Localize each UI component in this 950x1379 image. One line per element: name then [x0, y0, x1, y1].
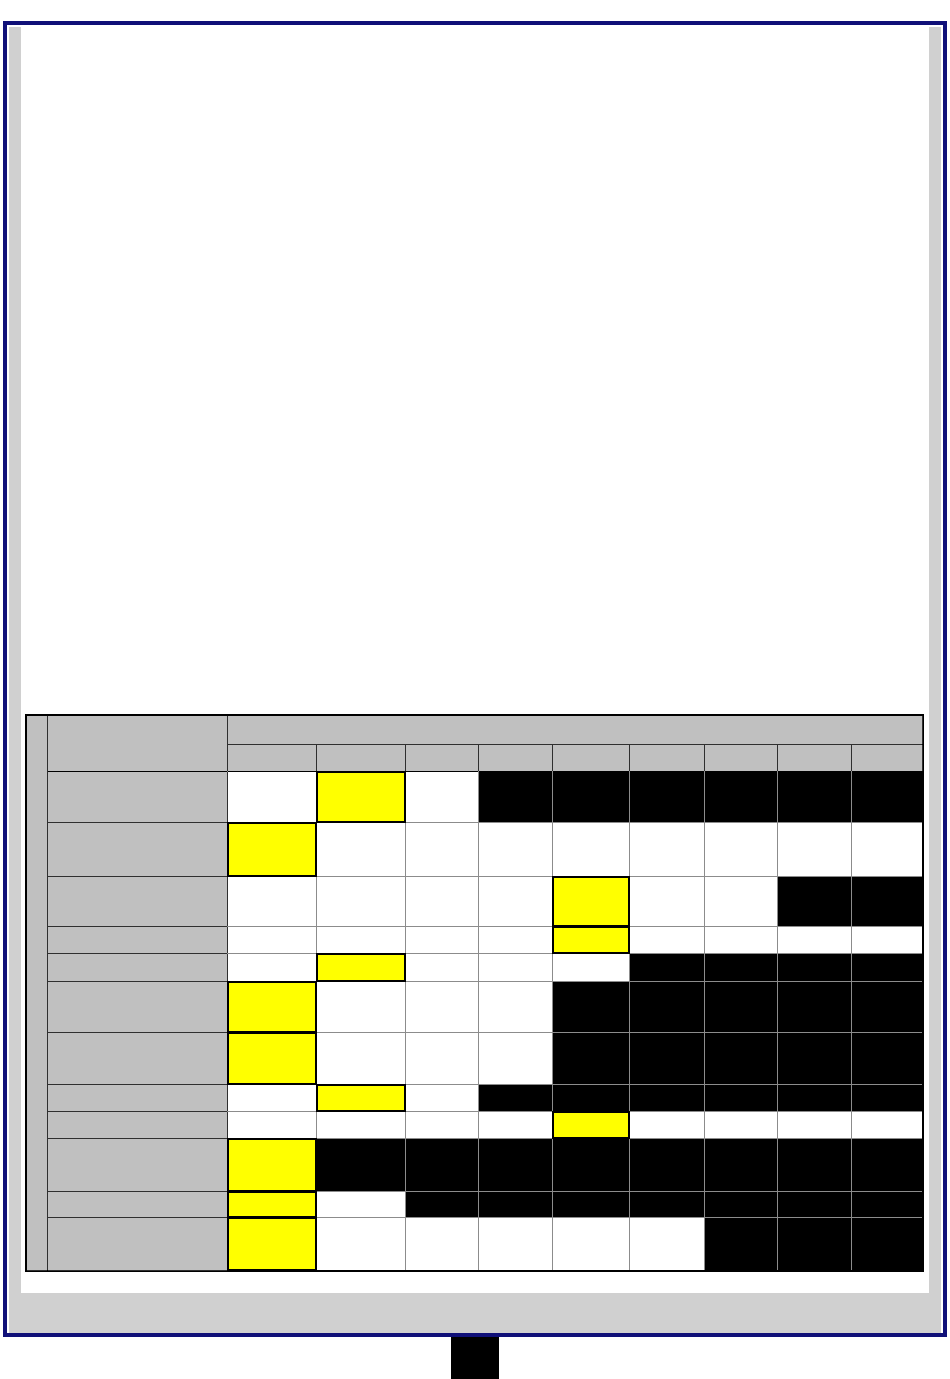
grid-cell[interactable] [406, 877, 478, 926]
grid-cell[interactable] [479, 1218, 552, 1270]
grid-cell[interactable] [778, 1085, 851, 1111]
column-header [778, 745, 851, 771]
grid-cell[interactable] [553, 1112, 629, 1138]
grid-cell[interactable] [630, 1112, 704, 1138]
grid-cell[interactable] [479, 1085, 552, 1111]
grid-cell[interactable] [852, 954, 922, 981]
grid-cell[interactable] [317, 1192, 405, 1217]
grid-cell[interactable] [778, 954, 851, 981]
column-header [479, 745, 552, 771]
grid-cell[interactable] [778, 1139, 851, 1191]
grid-cell[interactable] [705, 1085, 777, 1111]
grid-cell[interactable] [630, 1085, 704, 1111]
grid-cell[interactable] [317, 954, 405, 981]
grid-cell[interactable] [479, 1033, 552, 1084]
grid-cell[interactable] [317, 1112, 405, 1138]
grid-cell[interactable] [317, 772, 405, 822]
grid-cell[interactable] [553, 877, 629, 926]
grid-cell[interactable] [228, 1192, 316, 1217]
grid-cell[interactable] [406, 1085, 478, 1111]
left-margin [9, 27, 21, 1333]
grid-cell[interactable] [553, 772, 629, 822]
row-label [48, 1112, 227, 1138]
grid-cell[interactable] [778, 1218, 851, 1270]
grid-cell[interactable] [705, 1192, 777, 1217]
grid-cell[interactable] [406, 1112, 478, 1138]
grid-cell[interactable] [479, 1112, 552, 1138]
grid-cell[interactable] [228, 823, 316, 876]
grid-cell[interactable] [317, 1033, 405, 1084]
grid-cell[interactable] [406, 1033, 478, 1084]
corner-header [48, 716, 227, 771]
grid-cell[interactable] [317, 823, 405, 876]
grid-cell[interactable] [317, 982, 405, 1032]
grid-cell[interactable] [852, 927, 922, 953]
grid-cell[interactable] [228, 1139, 316, 1191]
grid-cell[interactable] [406, 1192, 478, 1217]
grid-cell[interactable] [630, 1218, 704, 1270]
column-header [630, 745, 704, 771]
grid-cell[interactable] [317, 877, 405, 926]
grid-cell[interactable] [479, 927, 552, 953]
grid-cell[interactable] [630, 772, 704, 822]
column-header [317, 745, 405, 771]
grid-cell[interactable] [479, 823, 552, 876]
row-label [48, 982, 227, 1032]
grid-cell[interactable] [553, 927, 629, 953]
grid-cell[interactable] [778, 823, 851, 876]
black-square-marker [451, 1337, 499, 1379]
grid-cell[interactable] [406, 1139, 478, 1191]
grid-cell[interactable] [479, 1192, 552, 1217]
grid-cell[interactable] [479, 772, 552, 822]
row-label [48, 1192, 227, 1217]
grid-cell[interactable] [479, 877, 552, 926]
grid-cell[interactable] [630, 982, 704, 1032]
grid-cell[interactable] [630, 823, 704, 876]
grid-cell[interactable] [852, 1085, 922, 1111]
column-header [553, 745, 629, 771]
grid-cell[interactable] [553, 954, 629, 981]
grid-cell[interactable] [553, 823, 629, 876]
grid-cell[interactable] [228, 877, 316, 926]
column-header [228, 745, 316, 771]
grid-cell[interactable] [852, 1218, 922, 1270]
row-label [48, 877, 227, 926]
row-gutter [27, 716, 47, 1270]
grid-cell[interactable] [479, 954, 552, 981]
grid-cell[interactable] [778, 877, 851, 926]
grid-cell[interactable] [630, 877, 704, 926]
grid-cell[interactable] [630, 954, 704, 981]
grid-cell[interactable] [406, 927, 478, 953]
grid-cell[interactable] [705, 823, 777, 876]
grid-cell[interactable] [553, 1192, 629, 1217]
grid-cell[interactable] [852, 1033, 922, 1084]
row-label [48, 1139, 227, 1191]
row-label [48, 954, 227, 981]
grid-cell[interactable] [317, 1139, 405, 1191]
row-label [48, 772, 227, 822]
row-label [48, 927, 227, 953]
grid-cell[interactable] [228, 772, 316, 822]
grid-cell[interactable] [479, 1139, 552, 1191]
grid-cell[interactable] [317, 1218, 405, 1270]
grid-cell[interactable] [852, 772, 922, 822]
grid-cell[interactable] [705, 1218, 777, 1270]
grid-cell[interactable] [317, 927, 405, 953]
grid-cell[interactable] [705, 1033, 777, 1084]
grid-cell[interactable] [553, 982, 629, 1032]
grid-cell[interactable] [553, 1139, 629, 1191]
grid-cell[interactable] [852, 823, 922, 876]
grid-cell[interactable] [705, 772, 777, 822]
grid-cell[interactable] [228, 1218, 316, 1270]
grid-cell[interactable] [553, 1218, 629, 1270]
row-label [48, 1085, 227, 1111]
grid-cell[interactable] [317, 1085, 405, 1111]
right-margin [929, 27, 941, 1333]
grid-cell[interactable] [553, 1033, 629, 1084]
grid-cell[interactable] [705, 954, 777, 981]
group-header [228, 716, 922, 744]
grid-cell[interactable] [852, 982, 922, 1032]
column-header [852, 745, 922, 771]
grid-cell[interactable] [778, 772, 851, 822]
grid-cell[interactable] [228, 927, 316, 953]
grid-cell[interactable] [705, 1112, 777, 1138]
grid-cell[interactable] [228, 1112, 316, 1138]
grid-cell[interactable] [630, 927, 704, 953]
column-header [705, 745, 777, 771]
grid-cell[interactable] [553, 1085, 629, 1111]
schedule-table [25, 714, 924, 1272]
grid-cell[interactable] [705, 877, 777, 926]
grid-cell[interactable] [479, 982, 552, 1032]
grid-cell[interactable] [778, 1033, 851, 1084]
grid-cell[interactable] [778, 927, 851, 953]
grid-cell[interactable] [852, 1112, 922, 1138]
grid-cell[interactable] [852, 1192, 922, 1217]
row-label [48, 1033, 227, 1084]
grid-cell[interactable] [630, 1192, 704, 1217]
grid-cell[interactable] [406, 1218, 478, 1270]
grid-cell[interactable] [778, 982, 851, 1032]
grid-cell[interactable] [852, 877, 922, 926]
bottom-margin [9, 1293, 941, 1333]
grid-cell[interactable] [406, 823, 478, 876]
grid-cell[interactable] [406, 772, 478, 822]
grid-cell[interactable] [228, 1033, 316, 1084]
row-label [48, 823, 227, 876]
grid-cell[interactable] [852, 1139, 922, 1191]
grid-cell[interactable] [228, 954, 316, 981]
grid-cell[interactable] [228, 1085, 316, 1111]
grid-cell[interactable] [630, 1139, 704, 1191]
grid-cell[interactable] [406, 954, 478, 981]
grid-cell[interactable] [705, 982, 777, 1032]
column-header [406, 745, 478, 771]
grid-cell[interactable] [778, 1192, 851, 1217]
grid-cell[interactable] [406, 982, 478, 1032]
grid-cell[interactable] [630, 1033, 704, 1084]
grid-cell[interactable] [705, 927, 777, 953]
row-label [48, 1218, 227, 1270]
grid-cell[interactable] [778, 1112, 851, 1138]
grid-cell[interactable] [705, 1139, 777, 1191]
grid-cell[interactable] [228, 982, 316, 1032]
